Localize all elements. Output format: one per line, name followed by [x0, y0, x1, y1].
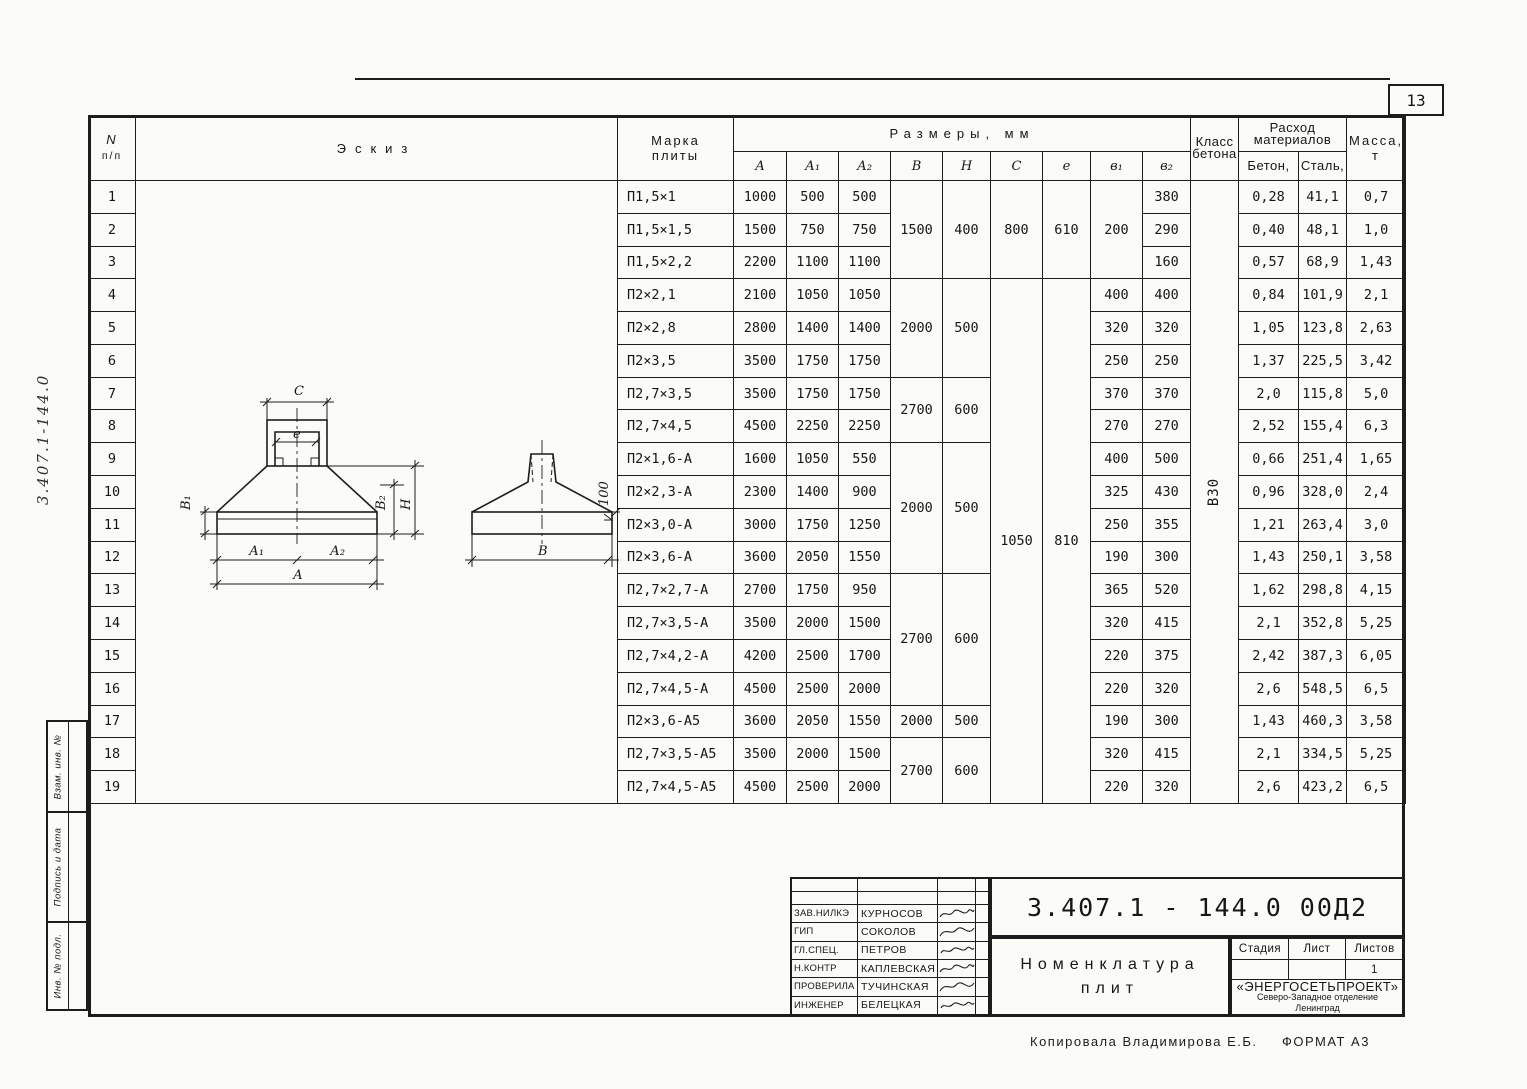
- cell-plate-mark: П2×3,6-А: [618, 541, 734, 574]
- cell-mass: 1,65: [1347, 443, 1406, 476]
- cell-row-number: 12: [89, 541, 136, 574]
- cell-dim-a1: 2000: [787, 738, 839, 771]
- cell-dim-b1: 320: [1091, 312, 1143, 345]
- cell-dim-a1: 1100: [787, 246, 839, 279]
- header-dim-3: В: [891, 152, 943, 181]
- cell-dim-a: 3600: [734, 705, 787, 738]
- copied-by-caption: Копировала Владимирова Е.Б.: [1030, 1034, 1258, 1049]
- cell-dim-a2: 1700: [839, 639, 891, 672]
- handwritten-doc-number: 3.407.1-144.0: [34, 355, 52, 505]
- cell-concrete-class: В30: [1191, 181, 1239, 804]
- cell-mass: 5,25: [1347, 738, 1406, 771]
- stamp-label: Подпись и дата: [53, 828, 64, 907]
- cell-dim-b2: 300: [1143, 705, 1191, 738]
- cell-dim-b2: 500: [1143, 443, 1191, 476]
- cell-dim-a: 3500: [734, 607, 787, 640]
- cell-dim-a: 4500: [734, 672, 787, 705]
- signature-scribble: [938, 906, 975, 921]
- cell-concrete-volume: 0,84: [1239, 279, 1299, 312]
- stage-sheet-headers: Стадия Лист Листов: [1232, 939, 1403, 960]
- cell-dim-h: 500: [943, 705, 991, 738]
- signature-scribble: [938, 943, 975, 958]
- table-header: N п/п Эскиз Марка плиты Размеры, мм Клас…: [89, 116, 1406, 181]
- cell-dim-a2: 950: [839, 574, 891, 607]
- cell-dim-b: 1500: [891, 181, 943, 279]
- cell-dim-a1: 1750: [787, 344, 839, 377]
- cell-dim-a1: 2500: [787, 672, 839, 705]
- cell-plate-mark: П2×3,0-А: [618, 508, 734, 541]
- signature-cell: [938, 905, 976, 923]
- cell-dim-a: 4500: [734, 771, 787, 804]
- dim-label-a1: А₁: [248, 544, 264, 559]
- cell-dim-b2: 320: [1143, 312, 1191, 345]
- cell-dim-b: 2000: [891, 443, 943, 574]
- cell-dim-a: 2100: [734, 279, 787, 312]
- signature-role: Инженер: [792, 997, 858, 1015]
- cell-dim-a1: 1400: [787, 476, 839, 509]
- cell-steel-weight: 352,8: [1299, 607, 1347, 640]
- cell-concrete-volume: 2,6: [1239, 771, 1299, 804]
- cell-dim-h: 500: [943, 443, 991, 574]
- cell-dim-a1: 1750: [787, 574, 839, 607]
- cell-concrete-volume: 2,42: [1239, 639, 1299, 672]
- header-dim-4: Н: [943, 152, 991, 181]
- stamp-label: Инв. № подл.: [53, 934, 64, 999]
- cell-dim-a: 3500: [734, 377, 787, 410]
- organization-branch: Северо-Западное отделение: [1257, 992, 1378, 1003]
- cell-row-number: 3: [89, 246, 136, 279]
- cell-mass: 2,63: [1347, 312, 1406, 345]
- drawing-title-line2: плит: [1081, 980, 1139, 998]
- cell-dim-a2: 1500: [839, 607, 891, 640]
- cell-mass: 6,05: [1347, 639, 1406, 672]
- cell-dim-c: 800: [991, 181, 1043, 279]
- page-number-box: 13: [1388, 84, 1444, 116]
- format-caption: Формат А3: [1282, 1034, 1370, 1049]
- header-dimensions-group: Размеры, мм: [734, 116, 1191, 152]
- cell-steel-weight: 460,3: [1299, 705, 1347, 738]
- cell-dim-b1: 370: [1091, 377, 1143, 410]
- scanned-drawing-page: 13 3.407.1-144.0 Взам. инв. № Подпись и …: [0, 0, 1527, 1089]
- cell-row-number: 11: [89, 508, 136, 541]
- cell-concrete-volume: 1,62: [1239, 574, 1299, 607]
- header-dim-7: в₁: [1091, 152, 1143, 181]
- cell-dim-b2: 355: [1143, 508, 1191, 541]
- frame-stamp-strip: Взам. инв. № Подпись и дата Инв. № подл.: [46, 722, 88, 1011]
- signature-table: Зав.НИЛКЭКурносовГИПСоколовГл.спец.Петро…: [790, 877, 990, 1017]
- signature-empty-cell: [858, 892, 938, 905]
- cell-dim-a1: 2500: [787, 639, 839, 672]
- listov-header: Листов: [1346, 939, 1403, 960]
- cell-dim-h: 400: [943, 181, 991, 279]
- cell-dim-a1: 750: [787, 213, 839, 246]
- signature-name: Соколов: [858, 923, 938, 941]
- cell-dim-h: 600: [943, 377, 991, 443]
- header-mass: Масса, т: [1347, 116, 1406, 181]
- cell-dim-a: 2800: [734, 312, 787, 345]
- cell-dim-b1: 220: [1091, 672, 1143, 705]
- cell-dim-a1: 1750: [787, 508, 839, 541]
- cell-row-number: 1: [89, 181, 136, 214]
- signature-date-cell: [976, 997, 988, 1015]
- cell-dim-a2: 1750: [839, 377, 891, 410]
- sheet-top-line: [355, 78, 1390, 80]
- cell-concrete-volume: 0,96: [1239, 476, 1299, 509]
- signature-scribble: [938, 961, 975, 976]
- cell-mass: 3,58: [1347, 705, 1406, 738]
- stamp-podpis-data: Подпись и дата: [46, 811, 88, 923]
- signature-scribble: [938, 998, 975, 1013]
- cell-plate-mark: П2,7×3,5-А: [618, 607, 734, 640]
- cell-steel-weight: 155,4: [1299, 410, 1347, 443]
- dim-label-h: Н: [399, 498, 414, 511]
- cell-mass: 6,5: [1347, 672, 1406, 705]
- cell-mass: 5,0: [1347, 377, 1406, 410]
- cell-mass: 6,5: [1347, 771, 1406, 804]
- stamp-divider: [68, 722, 69, 811]
- cell-plate-mark: П1,5×2,2: [618, 246, 734, 279]
- signature-name: Курносов: [858, 905, 938, 923]
- cell-dim-b2: 290: [1143, 213, 1191, 246]
- cell-plate-mark: П2,7×4,5-А5: [618, 771, 734, 804]
- signature-date-cell: [976, 923, 988, 941]
- cell-steel-weight: 115,8: [1299, 377, 1347, 410]
- cell-dim-a2: 1400: [839, 312, 891, 345]
- stamp-vzam-inv: Взам. инв. №: [46, 720, 88, 813]
- cell-dim-b1: 220: [1091, 771, 1143, 804]
- cell-dim-a1: 2050: [787, 705, 839, 738]
- dim-label-b: В: [537, 544, 548, 559]
- cell-dim-a: 3000: [734, 508, 787, 541]
- cell-dim-b1: 200: [1091, 181, 1143, 279]
- cell-concrete-volume: 1,43: [1239, 705, 1299, 738]
- signature-date-cell: [976, 942, 988, 960]
- cell-dim-a: 4500: [734, 410, 787, 443]
- slope-label-100: 100: [597, 481, 612, 506]
- cell-steel-weight: 387,3: [1299, 639, 1347, 672]
- header-dim-5: С: [991, 152, 1043, 181]
- cell-dim-a2: 1100: [839, 246, 891, 279]
- cell-steel-weight: 101,9: [1299, 279, 1347, 312]
- cell-dim-a1: 500: [787, 181, 839, 214]
- cell-mass: 4,15: [1347, 574, 1406, 607]
- cell-dim-a1: 1750: [787, 377, 839, 410]
- organization-city: Ленинград: [1295, 1003, 1339, 1014]
- cell-dim-a2: 2000: [839, 672, 891, 705]
- cell-dim-b: 2700: [891, 738, 943, 804]
- cell-dim-b: 2700: [891, 574, 943, 705]
- signature-name: Белецкая: [858, 997, 938, 1015]
- dim-label-a: А: [292, 568, 303, 583]
- drawing-title-line1: Номенклатура: [1020, 956, 1199, 974]
- cell-mass: 3,0: [1347, 508, 1406, 541]
- header-steel: Сталь,кг: [1299, 152, 1347, 181]
- cell-dim-b1: 400: [1091, 443, 1143, 476]
- cell-dim-b1: 270: [1091, 410, 1143, 443]
- cell-steel-weight: 328,0: [1299, 476, 1347, 509]
- signature-role: Зав.НИЛКЭ: [792, 905, 858, 923]
- cell-dim-b: 2700: [891, 377, 943, 443]
- listov-value: 1: [1346, 960, 1403, 980]
- signature-role: Н.контр: [792, 960, 858, 978]
- cell-plate-mark: П2×2,3-А: [618, 476, 734, 509]
- signature-empty-cell: [976, 879, 988, 892]
- signature-date-cell: [976, 905, 988, 923]
- cell-steel-weight: 423,2: [1299, 771, 1347, 804]
- organization-name: «ЭНЕРГОСЕТЬПРОЕКТ»: [1237, 981, 1399, 992]
- cell-dim-b1: 365: [1091, 574, 1143, 607]
- cell-steel-weight: 263,4: [1299, 508, 1347, 541]
- cell-steel-weight: 41,1: [1299, 181, 1347, 214]
- cell-dim-b2: 400: [1143, 279, 1191, 312]
- cell-mass: 1,0: [1347, 213, 1406, 246]
- cell-mass: 0,7: [1347, 181, 1406, 214]
- cell-plate-mark: П1,5×1,5: [618, 213, 734, 246]
- cell-mass: 3,42: [1347, 344, 1406, 377]
- cell-dim-a2: 1050: [839, 279, 891, 312]
- cell-dim-b1: 250: [1091, 344, 1143, 377]
- stage-sheet-box: Стадия Лист Листов 1 «ЭНЕРГОСЕТЬПРОЕКТ» …: [1230, 937, 1405, 1017]
- cell-steel-weight: 251,4: [1299, 443, 1347, 476]
- cell-plate-mark: П2,7×4,5: [618, 410, 734, 443]
- signature-empty-cell: [938, 892, 976, 905]
- cell-dim-a: 1000: [734, 181, 787, 214]
- organization-box: «ЭНЕРГОСЕТЬПРОЕКТ» Северо-Западное отдел…: [1232, 980, 1403, 1015]
- cell-steel-weight: 48,1: [1299, 213, 1347, 246]
- cell-dim-b2: 320: [1143, 672, 1191, 705]
- signature-date-cell: [976, 960, 988, 978]
- cell-dim-b2: 520: [1143, 574, 1191, 607]
- dim-label-b2: В₂: [374, 495, 389, 511]
- cell-dim-b2: 415: [1143, 738, 1191, 771]
- cell-row-number: 9: [89, 443, 136, 476]
- signature-scribble: [938, 979, 975, 994]
- cell-concrete-volume: 0,40: [1239, 213, 1299, 246]
- dim-label-a2: А₂: [329, 544, 345, 559]
- cell-concrete-volume: 0,57: [1239, 246, 1299, 279]
- cell-concrete-volume: 1,05: [1239, 312, 1299, 345]
- cell-row-number: 7: [89, 377, 136, 410]
- concrete-class-value: В30: [1207, 478, 1223, 506]
- cell-row-number: 16: [89, 672, 136, 705]
- header-concrete: Бетон,м³: [1239, 152, 1299, 181]
- cell-dim-b2: 375: [1143, 639, 1191, 672]
- cell-dim-a1: 1050: [787, 279, 839, 312]
- signature-empty-cell: [976, 892, 988, 905]
- cell-dim-a: 2200: [734, 246, 787, 279]
- cell-dim-a: 4200: [734, 639, 787, 672]
- cell-dim-a2: 1550: [839, 541, 891, 574]
- stamp-divider: [68, 813, 69, 921]
- signature-name: Петров: [858, 942, 938, 960]
- cell-dim-a2: 900: [839, 476, 891, 509]
- cell-concrete-volume: 2,52: [1239, 410, 1299, 443]
- cell-mass: 5,25: [1347, 607, 1406, 640]
- stamp-inv-podl: Инв. № подл.: [46, 921, 88, 1011]
- signature-empty-cell: [938, 879, 976, 892]
- cell-dim-c: 1050: [991, 279, 1043, 804]
- cell-dim-a: 2700: [734, 574, 787, 607]
- cell-dim-a2: 2000: [839, 771, 891, 804]
- cell-dim-b1: 250: [1091, 508, 1143, 541]
- cell-row-number: 2: [89, 213, 136, 246]
- cell-dim-b1: 190: [1091, 541, 1143, 574]
- signature-scribble: [938, 924, 975, 939]
- header-dim-0: А: [734, 152, 787, 181]
- cell-dim-b2: 430: [1143, 476, 1191, 509]
- cell-row-number: 6: [89, 344, 136, 377]
- cell-dim-b1: 220: [1091, 639, 1143, 672]
- cell-dim-b1: 320: [1091, 607, 1143, 640]
- cell-row-number: 13: [89, 574, 136, 607]
- cell-plate-mark: П2×3,6-А5: [618, 705, 734, 738]
- header-sketch: Эскиз: [136, 116, 618, 181]
- dim-label-c: С: [294, 384, 304, 399]
- signature-cell: [938, 997, 976, 1015]
- cell-concrete-volume: 1,21: [1239, 508, 1299, 541]
- cell-dim-b1: 325: [1091, 476, 1143, 509]
- cell-dim-b2: 320: [1143, 771, 1191, 804]
- cell-dim-e: 610: [1043, 181, 1091, 279]
- cell-dim-h: 500: [943, 279, 991, 377]
- cell-plate-mark: П2,7×4,2-А: [618, 639, 734, 672]
- cell-steel-weight: 68,9: [1299, 246, 1347, 279]
- cell-dim-a1: 2050: [787, 541, 839, 574]
- cell-dim-e: 810: [1043, 279, 1091, 804]
- drawing-title-box: Номенклатура плит: [990, 937, 1230, 1017]
- cell-steel-weight: 298,8: [1299, 574, 1347, 607]
- cell-mass: 2,1: [1347, 279, 1406, 312]
- cell-dim-b: 2000: [891, 705, 943, 738]
- cell-row-number: 5: [89, 312, 136, 345]
- cell-dim-b2: 270: [1143, 410, 1191, 443]
- cell-dim-h: 600: [943, 738, 991, 804]
- stadia-value: [1232, 960, 1289, 980]
- cell-row-number: 19: [89, 771, 136, 804]
- cell-dim-a2: 2250: [839, 410, 891, 443]
- cell-row-number: 18: [89, 738, 136, 771]
- cell-steel-weight: 123,8: [1299, 312, 1347, 345]
- signature-role: ГИП: [792, 923, 858, 941]
- cell-plate-mark: П2×3,5: [618, 344, 734, 377]
- cell-concrete-volume: 0,66: [1239, 443, 1299, 476]
- signature-cell: [938, 942, 976, 960]
- cell-row-number: 8: [89, 410, 136, 443]
- cell-steel-weight: 225,5: [1299, 344, 1347, 377]
- cell-plate-mark: П2,7×3,5: [618, 377, 734, 410]
- document-number-box: 3.407.1 - 144.0 00Д2: [990, 877, 1405, 937]
- cell-plate-mark: П2×2,1: [618, 279, 734, 312]
- header-dim-1: А₁: [787, 152, 839, 181]
- cell-concrete-volume: 2,1: [1239, 607, 1299, 640]
- cell-mass: 1,43: [1347, 246, 1406, 279]
- dim-label-e: е: [293, 427, 301, 442]
- cell-concrete-volume: 1,43: [1239, 541, 1299, 574]
- stage-sheet-values: 1: [1232, 960, 1403, 980]
- cell-dim-b2: 250: [1143, 344, 1191, 377]
- signature-empty-cell: [792, 892, 858, 905]
- cell-dim-b1: 400: [1091, 279, 1143, 312]
- cell-dim-b2: 380: [1143, 181, 1191, 214]
- stamp-divider: [68, 923, 69, 1009]
- cell-dim-a2: 1500: [839, 738, 891, 771]
- signature-name: Тучинская: [858, 978, 938, 996]
- cell-dim-a1: 2500: [787, 771, 839, 804]
- cell-mass: 2,4: [1347, 476, 1406, 509]
- cell-dim-a2: 1750: [839, 344, 891, 377]
- cell-plate-mark: П2×2,8: [618, 312, 734, 345]
- dim-label-b1: В₁: [179, 495, 194, 511]
- cell-mass: 6,3: [1347, 410, 1406, 443]
- cell-dim-h: 600: [943, 574, 991, 705]
- cell-plate-mark: П1,5×1: [618, 181, 734, 214]
- signature-name: Каплевская: [858, 960, 938, 978]
- cell-dim-b2: 160: [1143, 246, 1191, 279]
- cell-dim-a: 1600: [734, 443, 787, 476]
- cell-dim-b2: 415: [1143, 607, 1191, 640]
- cell-dim-b1: 190: [1091, 705, 1143, 738]
- cell-row-number: 17: [89, 705, 136, 738]
- cell-dim-a1: 2000: [787, 607, 839, 640]
- header-row-number: N п/п: [89, 116, 136, 181]
- signature-cell: [938, 978, 976, 996]
- cell-dim-a2: 750: [839, 213, 891, 246]
- cell-dim-a1: 1400: [787, 312, 839, 345]
- cell-plate-mark: П2,7×4,5-А: [618, 672, 734, 705]
- cell-concrete-volume: 1,37: [1239, 344, 1299, 377]
- cell-concrete-volume: 0,28: [1239, 181, 1299, 214]
- header-dim-6: е: [1043, 152, 1091, 181]
- cell-dim-a: 3500: [734, 344, 787, 377]
- list-header: Лист: [1289, 939, 1346, 960]
- cell-dim-a1: 1050: [787, 443, 839, 476]
- plate-sketch: С е В₁ В₂ Н А₁ А₂ А: [142, 382, 622, 597]
- cell-dim-a2: 1550: [839, 705, 891, 738]
- cell-dim-a2: 1250: [839, 508, 891, 541]
- cell-dim-b1: 320: [1091, 738, 1143, 771]
- cell-dim-a: 3600: [734, 541, 787, 574]
- signature-role: Гл.спец.: [792, 942, 858, 960]
- header-mark: Марка плиты: [618, 116, 734, 181]
- signature-cell: [938, 923, 976, 941]
- cell-concrete-volume: 2,1: [1239, 738, 1299, 771]
- cell-steel-weight: 548,5: [1299, 672, 1347, 705]
- cell-dim-b2: 300: [1143, 541, 1191, 574]
- header-concrete-class: Класс бетона: [1191, 116, 1239, 181]
- cell-mass: 3,58: [1347, 541, 1406, 574]
- signature-empty-cell: [792, 879, 858, 892]
- cell-row-number: 15: [89, 639, 136, 672]
- cell-row-number: 4: [89, 279, 136, 312]
- stamp-label: Взам. инв. №: [53, 734, 64, 799]
- cell-dim-a: 2300: [734, 476, 787, 509]
- cell-row-number: 14: [89, 607, 136, 640]
- signature-empty-cell: [858, 879, 938, 892]
- cell-plate-mark: П2,7×3,5-А5: [618, 738, 734, 771]
- header-dim-8: в₂: [1143, 152, 1191, 181]
- signature-date-cell: [976, 978, 988, 996]
- cell-dim-a: 1500: [734, 213, 787, 246]
- page-number: 13: [1406, 91, 1425, 110]
- signature-role: Проверила: [792, 978, 858, 996]
- cell-dim-a2: 550: [839, 443, 891, 476]
- cell-concrete-volume: 2,0: [1239, 377, 1299, 410]
- cell-dim-a: 3500: [734, 738, 787, 771]
- list-value: [1289, 960, 1346, 980]
- header-dim-2: А₂: [839, 152, 891, 181]
- cell-steel-weight: 334,5: [1299, 738, 1347, 771]
- cell-concrete-volume: 2,6: [1239, 672, 1299, 705]
